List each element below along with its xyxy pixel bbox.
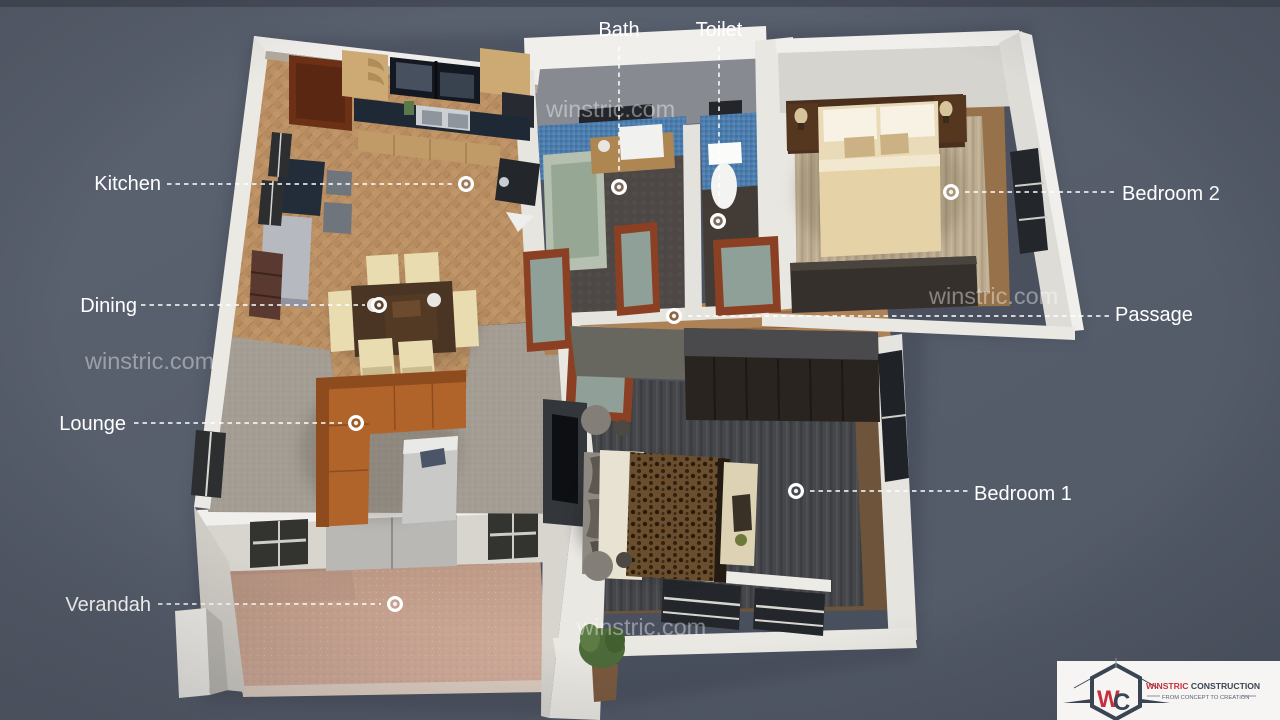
svg-text:FROM CONCEPT TO CREATION: FROM CONCEPT TO CREATION bbox=[1162, 695, 1250, 701]
svg-text:WINSTRIC CONSTRUCTION: WINSTRIC CONSTRUCTION bbox=[1146, 681, 1260, 691]
svg-text:C: C bbox=[1113, 689, 1130, 716]
